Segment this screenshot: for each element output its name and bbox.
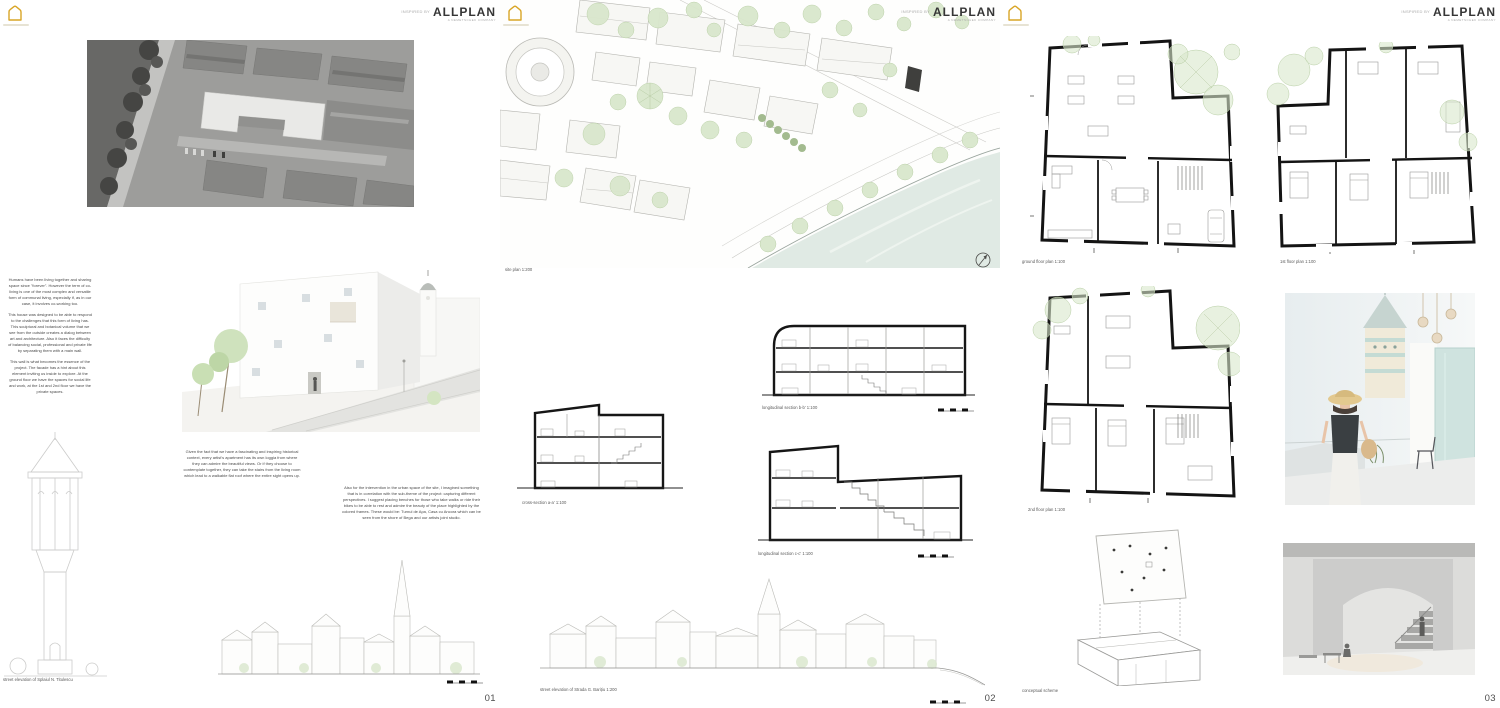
logo-caption-placeholder bbox=[3, 24, 29, 26]
scale-bar bbox=[447, 676, 487, 686]
loggia-render bbox=[1285, 293, 1475, 505]
brand-logo: ALLPLAN bbox=[433, 6, 496, 18]
scale-bar bbox=[930, 696, 970, 706]
first-floor-label: 1st floor plan 1:100 bbox=[1280, 259, 1316, 264]
street-elevation-drawing bbox=[218, 556, 480, 682]
second-floor-label: 2nd floor plan 1:100 bbox=[1028, 507, 1065, 512]
long-section-b-label: longitudinal section b-b' 1:100 bbox=[762, 405, 817, 410]
project-description: Humans have been living together and sha… bbox=[8, 277, 92, 400]
allplan-house-logo-icon bbox=[1007, 4, 1023, 22]
logo-caption-placeholder bbox=[1003, 24, 1029, 26]
second-floor-plan bbox=[1028, 286, 1240, 504]
logo-caption-placeholder bbox=[503, 24, 529, 26]
panel-01: INSPIRED BY ALLPLAN A NEMETSCHEK COMPANY bbox=[0, 0, 500, 708]
brand-logo: ALLPLAN bbox=[933, 6, 996, 18]
scale-bar bbox=[918, 550, 958, 560]
conceptual-scheme bbox=[1056, 528, 1228, 686]
brand-header: INSPIRED BY ALLPLAN A NEMETSCHEK COMPANY bbox=[901, 6, 996, 22]
page-number: 02 bbox=[985, 693, 996, 704]
brand-prefix: INSPIRED BY bbox=[901, 10, 930, 14]
first-floor-plan bbox=[1266, 42, 1480, 254]
page-number: 01 bbox=[485, 693, 496, 704]
presentation-board: INSPIRED BY ALLPLAN A NEMETSCHEK COMPANY bbox=[0, 0, 1500, 708]
ground-floor-plan bbox=[1028, 36, 1240, 254]
paragraph-wall: This wall is what becomes the essence of… bbox=[8, 359, 92, 395]
scale-bar bbox=[938, 404, 978, 414]
brand-prefix: INSPIRED BY bbox=[1401, 10, 1430, 14]
cross-section-label: cross-section a-a' 1:100 bbox=[522, 500, 566, 505]
brand-subtitle: A NEMETSCHEK COMPANY bbox=[948, 19, 996, 22]
cross-section-drawing bbox=[515, 385, 685, 498]
urban-text: Also for the intervention in the urban s… bbox=[341, 485, 482, 526]
site-plan-drawing bbox=[500, 0, 1000, 268]
interior-render bbox=[1283, 543, 1475, 675]
street-elevation-label: street elevation of Strada G. Barițiu 1:… bbox=[540, 687, 617, 692]
brand-subtitle: A NEMETSCHEK COMPANY bbox=[1448, 19, 1496, 22]
loggia-text: Given the fact that we have a fascinatin… bbox=[183, 449, 301, 484]
street-elevation-drawing bbox=[540, 574, 985, 686]
brand-logo: ALLPLAN bbox=[1433, 6, 1496, 18]
aerial-photo bbox=[87, 40, 414, 207]
long-section-c-label: longitudinal section c-c' 1:100 bbox=[758, 551, 813, 556]
page-number: 03 bbox=[1485, 693, 1496, 704]
site-plan-label: site plan 1:200 bbox=[505, 267, 532, 272]
allplan-house-logo-icon bbox=[507, 4, 523, 22]
water-tower-sketch bbox=[2, 430, 110, 682]
exterior-render bbox=[182, 240, 480, 432]
paragraph-design: This house was designed to be able to re… bbox=[8, 312, 92, 354]
brand-prefix: INSPIRED BY bbox=[401, 10, 430, 14]
paragraph-intro: Humans have been living together and sha… bbox=[8, 277, 92, 307]
ground-floor-label: ground floor plan 1:100 bbox=[1022, 259, 1065, 264]
street-elevation-label: street elevation of Splaiul N. Titulescu bbox=[3, 677, 73, 682]
conceptual-scheme-label: conceptual scheme bbox=[1022, 688, 1058, 693]
panel-02: site plan 1:200 cross-section a-a' 1:100 bbox=[500, 0, 1000, 708]
brand-subtitle: A NEMETSCHEK COMPANY bbox=[448, 19, 496, 22]
panel-03: INSPIRED BY ALLPLAN A NEMETSCHEK COMPANY bbox=[1000, 0, 1500, 708]
brand-header: INSPIRED BY ALLPLAN A NEMETSCHEK COMPANY bbox=[401, 6, 496, 22]
paragraph-loggia: Given the fact that we have a fascinatin… bbox=[183, 449, 301, 479]
long-section-c-drawing bbox=[758, 436, 973, 548]
long-section-b-drawing bbox=[762, 318, 975, 402]
paragraph-urban: Also for the intervention in the urban s… bbox=[341, 485, 482, 521]
brand-header: INSPIRED BY ALLPLAN A NEMETSCHEK COMPANY bbox=[1401, 6, 1496, 22]
allplan-house-logo-icon bbox=[7, 4, 23, 22]
